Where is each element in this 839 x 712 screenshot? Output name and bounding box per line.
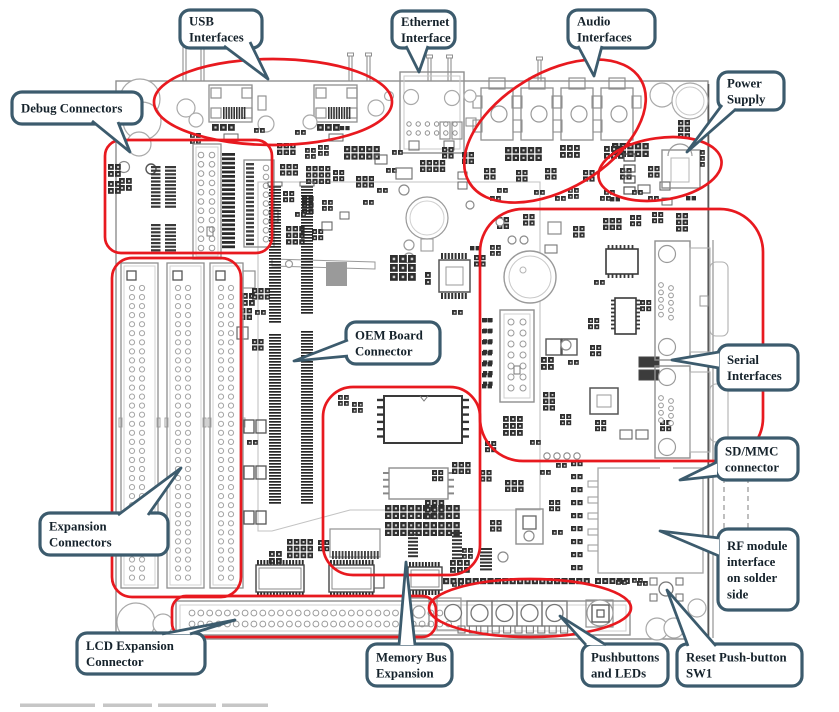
svg-text:Debug Connectors: Debug Connectors (21, 102, 122, 116)
